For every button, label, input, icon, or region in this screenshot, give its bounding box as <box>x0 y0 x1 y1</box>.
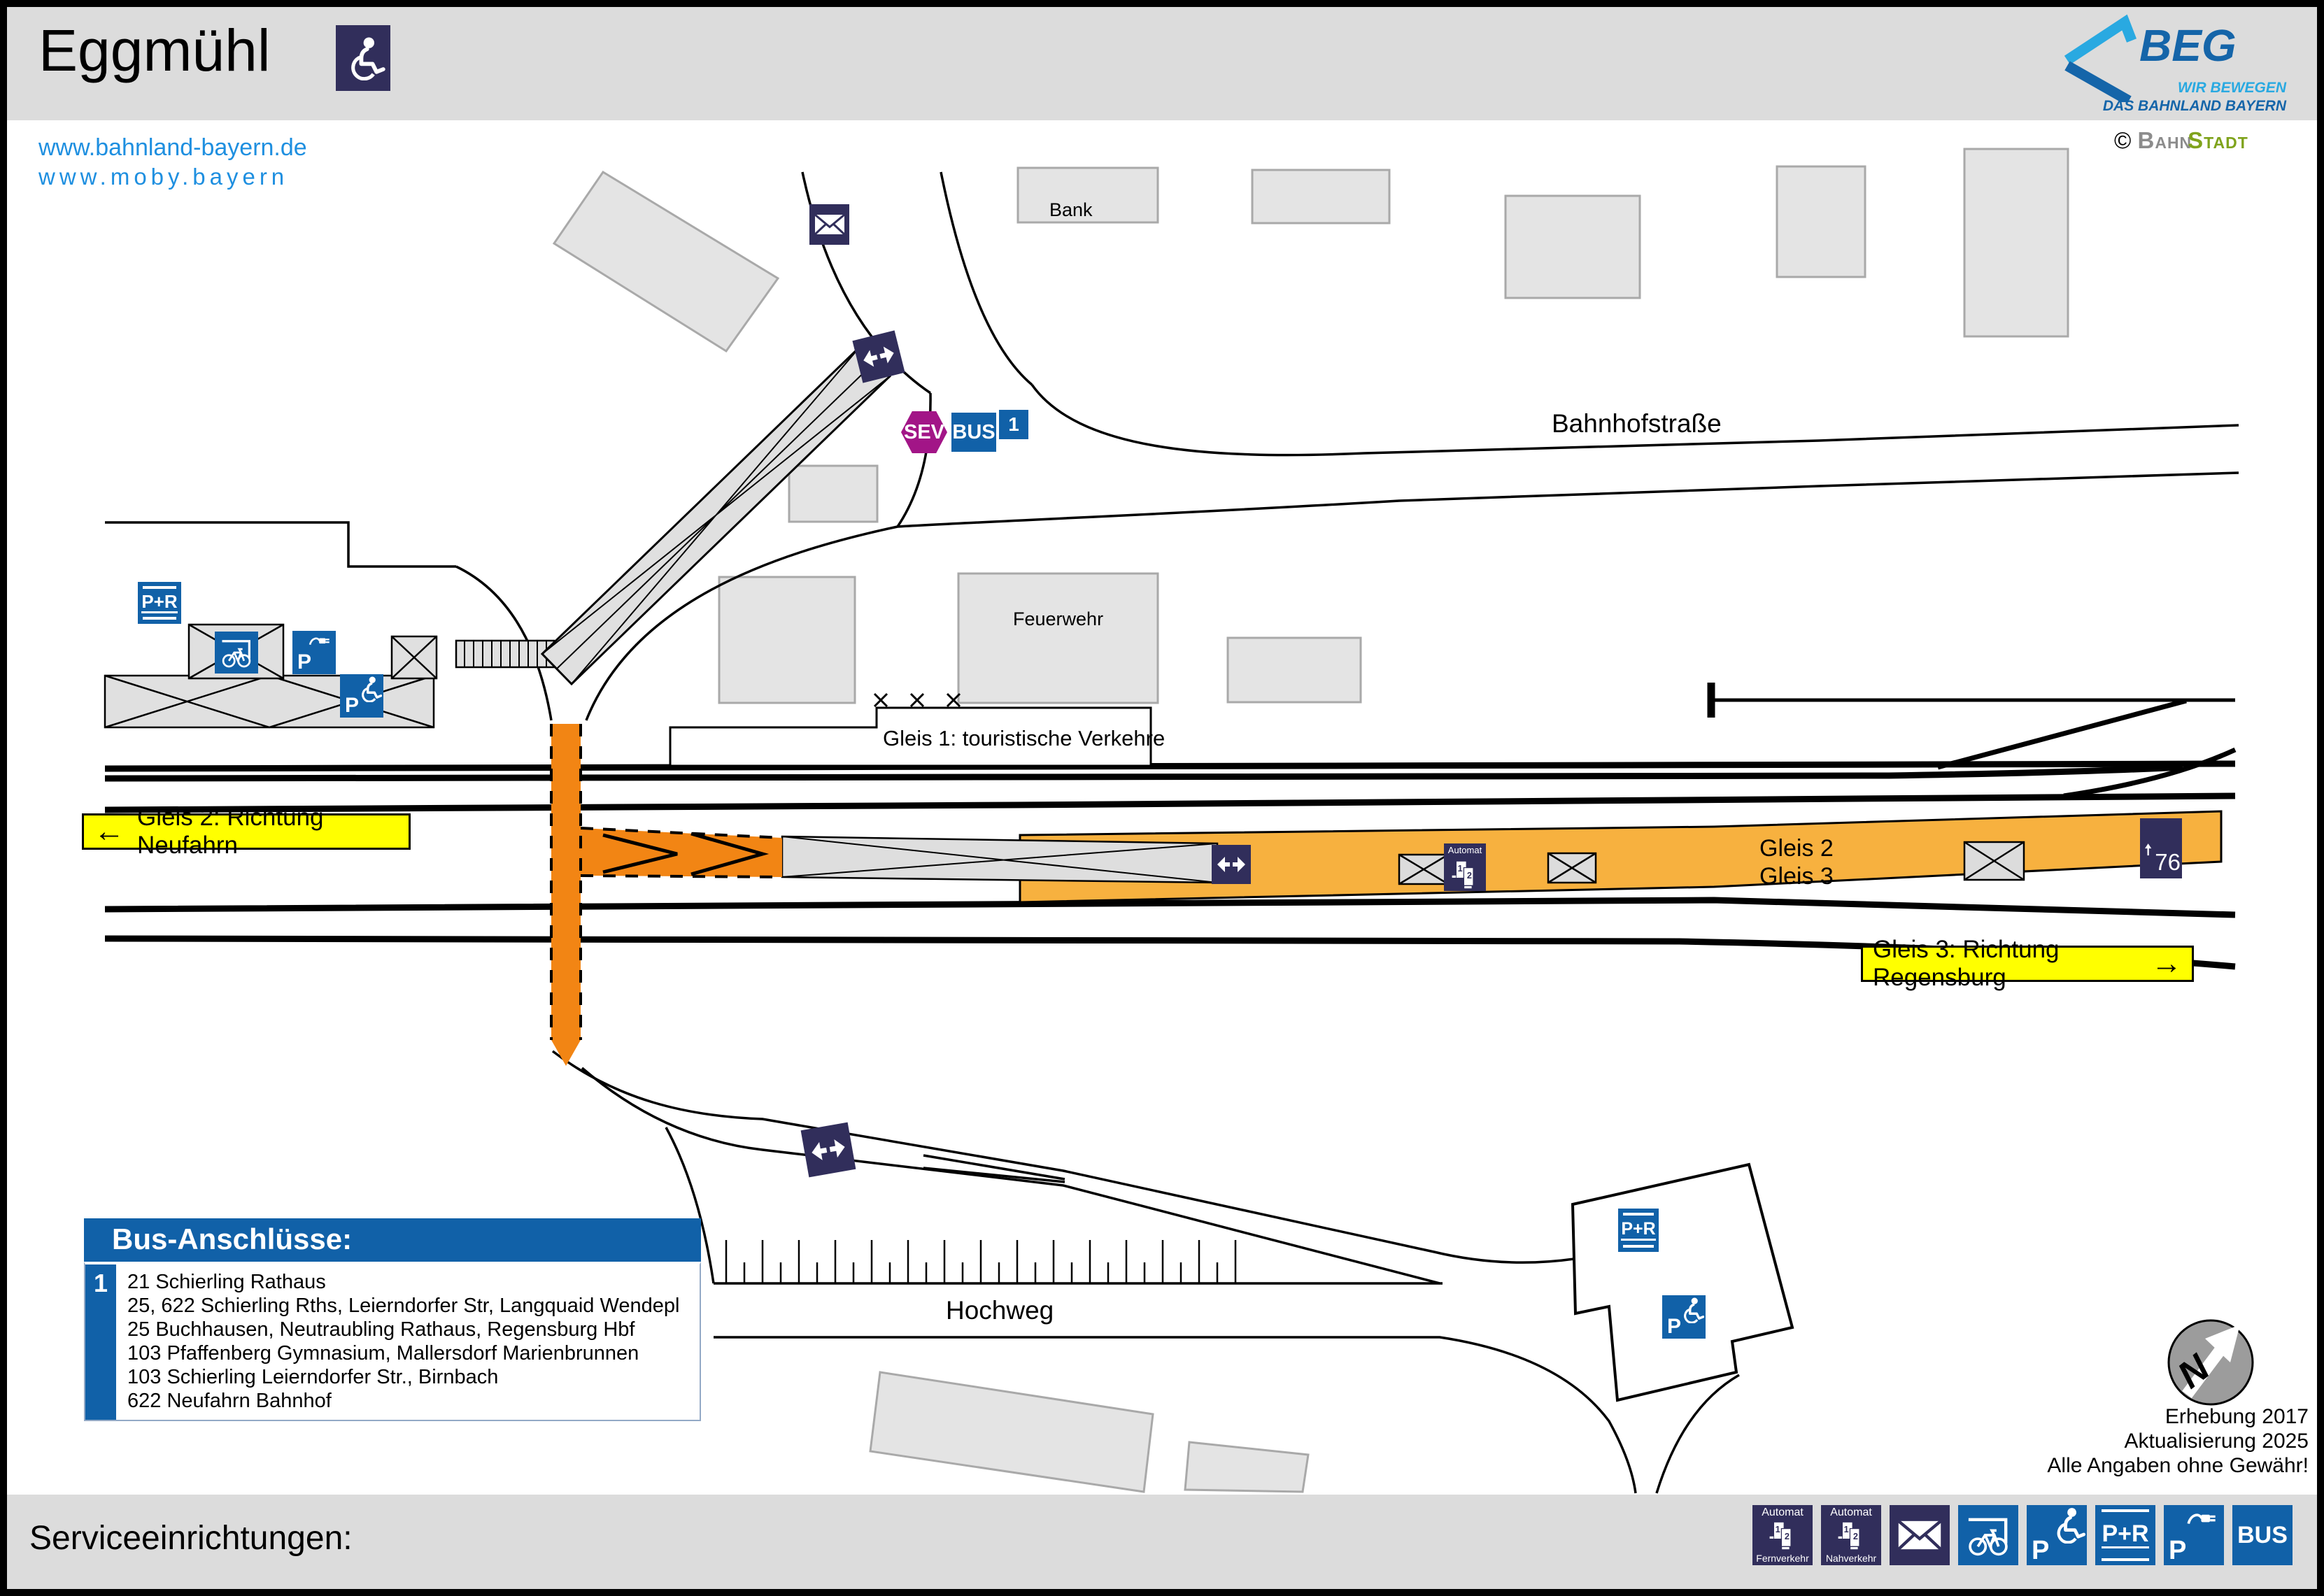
wheelchair-accessible-icon <box>336 25 390 91</box>
platform-ramp <box>782 836 1217 883</box>
ev-charging-parking-icon: P <box>292 631 336 674</box>
bus-stop-number-badge: 1 <box>85 1264 116 1420</box>
park-and-ride-sign: P+R <box>1618 1209 1659 1252</box>
building-label-bank: Bank <box>1049 199 1093 221</box>
direction-label-neufahrn: ← Gleis 2: Richtung Neufahrn <box>82 813 411 850</box>
bus-line: 103 Pfaffenberg Gymnasium, Mallersdorf M… <box>127 1341 679 1365</box>
direction-right-text: Gleis 3: Richtung Regensburg <box>1873 936 2139 992</box>
bike-parking-icon <box>1958 1505 2018 1565</box>
bus-line: 103 Schierling Leierndorfer Str., Birnba… <box>127 1365 679 1389</box>
parking-comb <box>726 1240 1235 1283</box>
fence-marks <box>874 694 960 706</box>
bus-line: 622 Neufahrn Bahnhof <box>127 1389 679 1413</box>
platform-label-gleis2: Gleis 2 <box>1759 835 1834 862</box>
bus-icon: BUS <box>2232 1505 2293 1565</box>
up-arrow-icon <box>2141 824 2155 876</box>
bus-connections-title: Bus-Anschlüsse: <box>84 1218 701 1262</box>
barrier-free-access-icon <box>801 1123 856 1178</box>
page-title: Eggmühl <box>38 17 271 85</box>
track-gleis3 <box>105 900 2235 915</box>
bike-parking-icon <box>215 632 258 674</box>
building <box>719 577 855 703</box>
building <box>1964 149 2068 336</box>
survey-notes: Erhebung 2017 Aktualisierung 2025 Alle A… <box>2001 1404 2309 1478</box>
gleis1-note: Gleis 1: touristische Verkehre <box>883 726 1149 751</box>
building <box>789 466 877 522</box>
link-moby-bayern[interactable]: www.moby.bayern <box>38 164 288 190</box>
park-and-ride-icon: P+R <box>2095 1505 2155 1565</box>
beg-tagline-2: DAS BAHNLAND BAYERN <box>2064 98 2286 115</box>
barrier-free-access-icon <box>1212 845 1251 884</box>
building <box>1777 166 1865 277</box>
ev-charging-parking-icon: P <box>2164 1505 2224 1565</box>
bus-connections-box: Bus-Anschlüsse: 1 21 Schierling Rathaus … <box>84 1218 701 1421</box>
platform-height-76-sign: 76 <box>2140 818 2182 878</box>
bus-line: 25 Buchhausen, Neutraubling Rathaus, Reg… <box>127 1318 679 1341</box>
arrow-left-icon: ← <box>94 816 125 847</box>
direction-left-text: Gleis 2: Richtung Neufahrn <box>137 804 399 860</box>
mailbox-icon <box>1890 1505 1950 1565</box>
bus-line: 21 Schierling Rathaus <box>127 1270 679 1294</box>
building <box>554 172 778 351</box>
service-icons-legend: Automat Fernverkehr Automat Nahverkehr P… <box>1752 1505 2293 1565</box>
bahnstadt-green: Stadt <box>2188 127 2248 153</box>
direction-label-regensburg: Gleis 3: Richtung Regensburg → <box>1861 946 2194 982</box>
copyright-symbol: © <box>2114 127 2131 153</box>
track-gleis2 <box>105 796 2235 810</box>
bus-stop-icon: BUS <box>951 413 996 452</box>
bus-line: 25, 622 Schierling Rths, Leierndorfer St… <box>127 1294 679 1318</box>
note-erhebung: Erhebung 2017 <box>2001 1404 2309 1429</box>
street-label-hochweg: Hochweg <box>946 1296 1054 1325</box>
building <box>1252 170 1389 223</box>
station-map-eggmuehl: 1 2 <box>0 0 2324 1596</box>
platform-label-gleis3: Gleis 3 <box>1759 863 1834 890</box>
accessible-parking-icon: P <box>2027 1505 2087 1565</box>
building <box>1505 196 1640 298</box>
note-disclaimer: Alle Angaben ohne Gewähr! <box>2001 1453 2309 1478</box>
footer-title: Serviceeinrichtungen: <box>29 1519 353 1558</box>
beg-tagline-1: WIR BEWEGEN <box>2064 80 2286 97</box>
building <box>1228 638 1361 702</box>
park-and-ride-sign: P+R <box>138 582 181 624</box>
accessible-parking-icon: P <box>1662 1295 1706 1339</box>
link-bahnland-bayern[interactable]: www.bahnland-bayern.de <box>38 134 307 162</box>
parkride-building <box>1573 1164 1792 1400</box>
buildings-layer <box>554 149 2068 1492</box>
ticket-machine-icon: Automat <box>1444 843 1486 891</box>
accessible-parking-icon: P <box>340 674 383 718</box>
building <box>870 1372 1153 1492</box>
bahnstadt-credit: © BahnStadt <box>2114 127 2248 154</box>
mailbox-icon <box>809 204 849 245</box>
building-feuerwehr <box>958 573 1158 703</box>
bus-connections-list: 21 Schierling Rathaus 25, 622 Schierling… <box>116 1264 686 1420</box>
track-gleis1 <box>105 764 2235 769</box>
building <box>1185 1442 1308 1492</box>
building-label-feuerwehr: Feuerwehr <box>1013 608 1103 630</box>
ticket-machine-long-distance-icon: Automat Fernverkehr <box>1752 1505 1813 1565</box>
bus-stop-number-badge: 1 <box>999 410 1028 439</box>
note-aktualisierung: Aktualisierung 2025 <box>2001 1429 2309 1453</box>
street-label-bahnhofstrasse: Bahnhofstraße <box>1552 409 1722 439</box>
beg-logo-text: BEG <box>2139 20 2237 71</box>
ticket-machine-local-icon: Automat Nahverkehr <box>1821 1505 1881 1565</box>
bahnstadt-gray: Bahn <box>2138 127 2192 153</box>
arrow-right-icon: → <box>2151 948 2182 979</box>
